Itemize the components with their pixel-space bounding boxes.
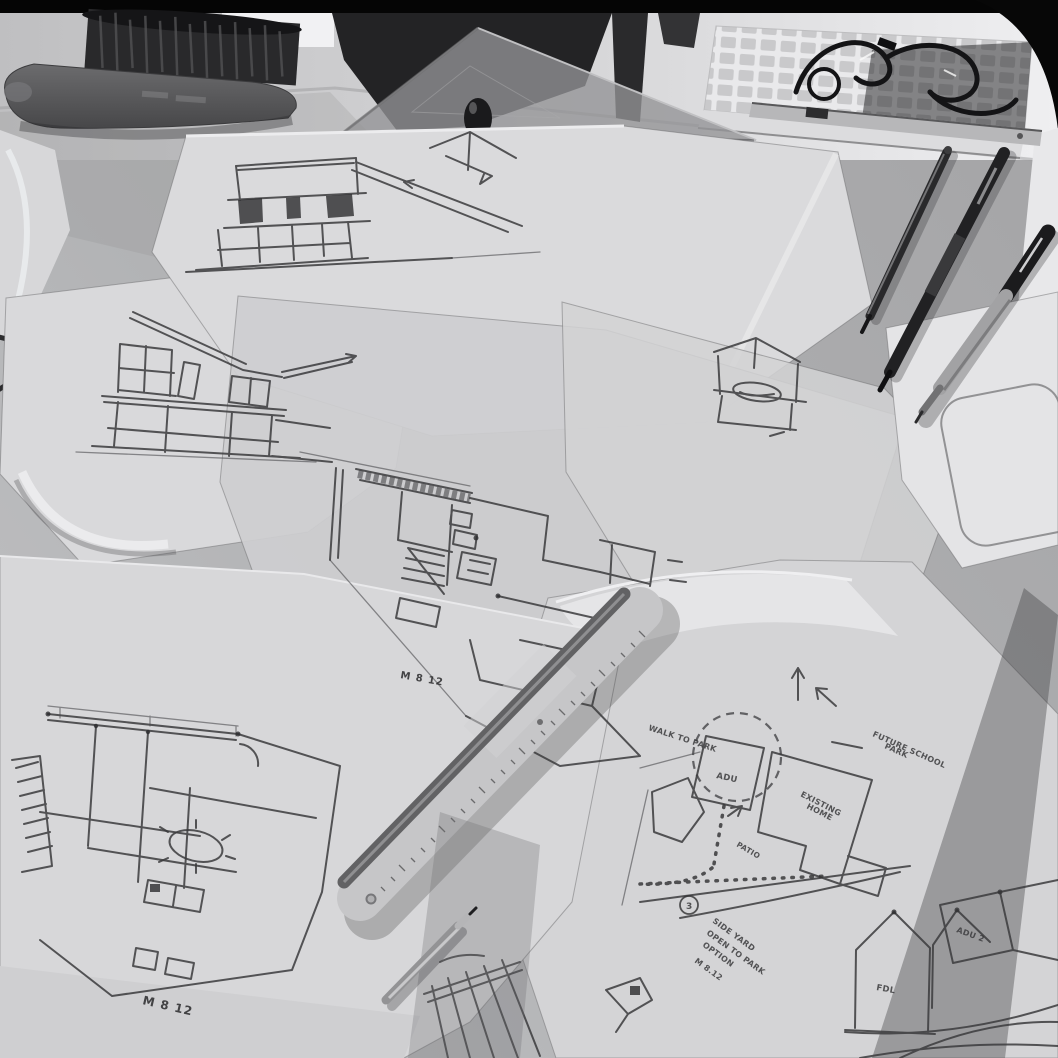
site-step-number: 3 (686, 902, 693, 912)
photo-canvas: M 8 12 M 8 12 (0, 0, 1058, 1058)
desk-photo: M 8 12 M 8 12 (0, 0, 1058, 1058)
